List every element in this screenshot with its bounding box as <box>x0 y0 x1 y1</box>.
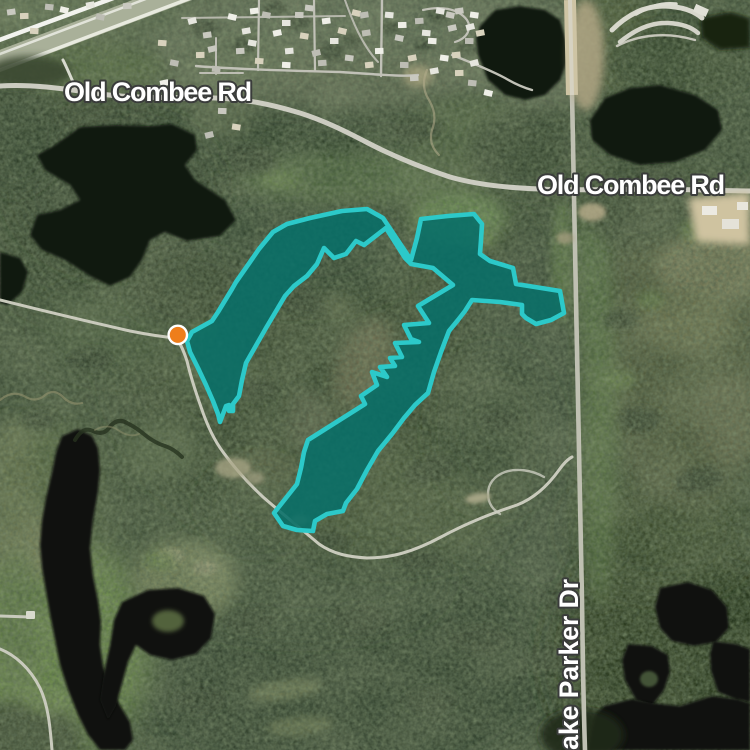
svg-text:Old Combee Rd: Old Combee Rd <box>537 170 724 200</box>
svg-text:Lake Parker Dr: Lake Parker Dr <box>554 579 584 750</box>
svg-text:Old Combee Rd: Old Combee Rd <box>64 77 251 107</box>
